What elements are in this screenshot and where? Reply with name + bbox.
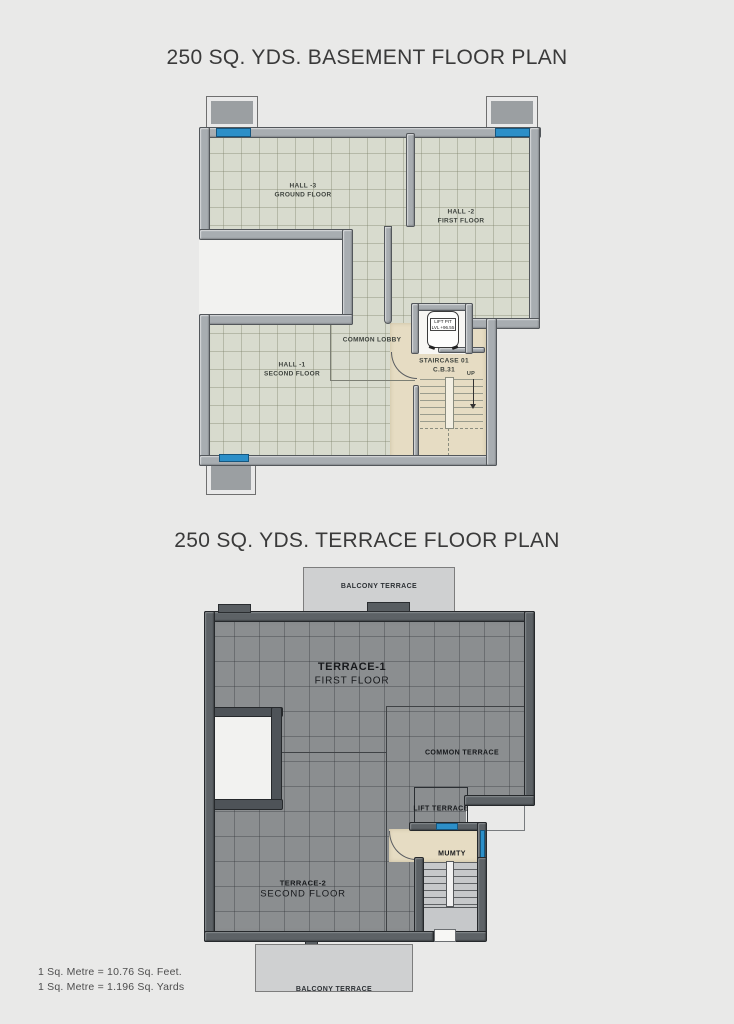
terrace-boundary-line — [386, 706, 524, 707]
label-balcony-top: BALCONY TERRACE — [341, 583, 417, 590]
lift-icon: LIFT PIT LVL +96.55 — [427, 311, 459, 348]
label-hall1-floor: SECOND FLOOR — [264, 371, 320, 378]
stair-dashed-line — [448, 428, 450, 456]
wall-lift-right — [465, 303, 473, 354]
wall-notch-top — [199, 229, 353, 240]
up-arrow-line — [473, 379, 474, 405]
exterior-notch — [199, 240, 342, 315]
label-hall3-floor: GROUND FLOOR — [274, 192, 331, 199]
wall-stairs-left — [414, 857, 424, 941]
label-terrace1-floor: FIRST FLOOR — [315, 676, 390, 687]
wall-bottom — [204, 931, 434, 942]
wall-right — [529, 127, 540, 329]
basement-plan: LIFT PIT LVL +96.55 HALL -3 GROUND FLOOR… — [0, 0, 734, 520]
pillar-top-right — [486, 96, 538, 129]
label-terrace1-name: TERRACE-1 — [318, 661, 386, 673]
wall-staircase-right — [486, 318, 497, 466]
wall-left — [204, 611, 215, 942]
label-mumty: MUMTY — [438, 851, 466, 858]
wall-lift-left — [411, 303, 419, 354]
stair-center-rail — [446, 861, 454, 907]
wall-stub — [218, 604, 251, 613]
label-balcony-bottom: BALCONY TERRACE — [296, 986, 372, 993]
wall-notch-bottom — [204, 799, 283, 810]
wall-hall-divider — [406, 133, 415, 227]
label-hall2-name: HALL -2 — [448, 209, 475, 216]
lobby-boundary-line — [330, 380, 415, 381]
wall-notch-bottom — [199, 314, 353, 325]
lift-name: LIFT PIT — [431, 319, 455, 325]
wall-lobby — [384, 226, 392, 324]
stair-center-rail — [445, 377, 454, 429]
label-staircase-code: C.B.31 — [433, 367, 455, 374]
wall-left-upper — [199, 127, 210, 239]
roof-edge-line — [487, 830, 525, 831]
window-strip — [436, 823, 458, 830]
footer-conversion-feet: 1 Sq. Metre = 10.76 Sq. Feet. — [38, 966, 182, 978]
terrace-boundary-line — [386, 706, 387, 932]
terrace-plan: BALCONY TERRACE BALCONY TERRACE TERRACE — [0, 520, 734, 1024]
pillar-core — [491, 101, 533, 124]
wall-top — [204, 611, 535, 622]
pillar-top-left — [206, 96, 258, 129]
window-strip — [216, 128, 251, 137]
footer-conversion-yards: 1 Sq. Metre = 1.196 Sq. Yards — [38, 981, 184, 993]
wall-common-terrace-bottom — [464, 795, 535, 806]
wall-notch-right — [342, 229, 353, 325]
label-staircase-name: STAIRCASE 01 — [419, 358, 469, 365]
pillar-core — [211, 466, 251, 490]
wall-hall2-bottom — [466, 318, 540, 329]
label-terrace2-name: TERRACE-2 — [280, 879, 327, 888]
window-strip — [480, 830, 485, 860]
wall-lift-top — [411, 303, 473, 311]
exterior-area — [487, 805, 540, 947]
label-hall1-name: HALL -1 — [279, 362, 306, 369]
label-common-terrace: COMMON TERRACE — [425, 750, 499, 757]
label-up: UP — [467, 371, 475, 377]
lift-label-box: LIFT PIT LVL +96.55 — [430, 318, 456, 331]
wall-notch-right — [271, 707, 282, 810]
label-hall2-floor: FIRST FLOOR — [438, 218, 485, 225]
label-hall3-name: HALL -3 — [290, 183, 317, 190]
wall-left-lower — [199, 314, 210, 466]
label-lift-terrace: LIFT TERRACE — [413, 806, 468, 813]
lift-level: LVL +96.55 — [431, 325, 455, 331]
stair-dashed-line — [420, 428, 483, 430]
pillar-core — [211, 101, 253, 124]
wall-stairs-right — [477, 857, 487, 941]
floor-plan-document: { "basement": { "title": "250 SQ. YDS. B… — [0, 0, 734, 1024]
label-terrace2-floor: SECOND FLOOR — [260, 889, 346, 900]
terrace-boundary-line — [282, 752, 387, 753]
roof-edge-line — [524, 805, 525, 831]
wall-right — [524, 611, 535, 806]
exterior-area — [496, 329, 540, 469]
lobby-boundary-line — [330, 325, 331, 380]
wall-stub — [367, 602, 410, 612]
pillar-bottom-left — [206, 461, 256, 495]
window-strip — [219, 454, 249, 462]
window-strip — [495, 128, 530, 137]
stairs-door-gap — [434, 929, 456, 942]
wall-staircase-left — [413, 385, 419, 457]
balcony-terrace-bottom: BALCONY TERRACE — [255, 944, 413, 992]
exterior-notch — [215, 717, 271, 799]
label-common-lobby: COMMON LOBBY — [343, 337, 402, 344]
up-arrow-head — [470, 404, 476, 409]
